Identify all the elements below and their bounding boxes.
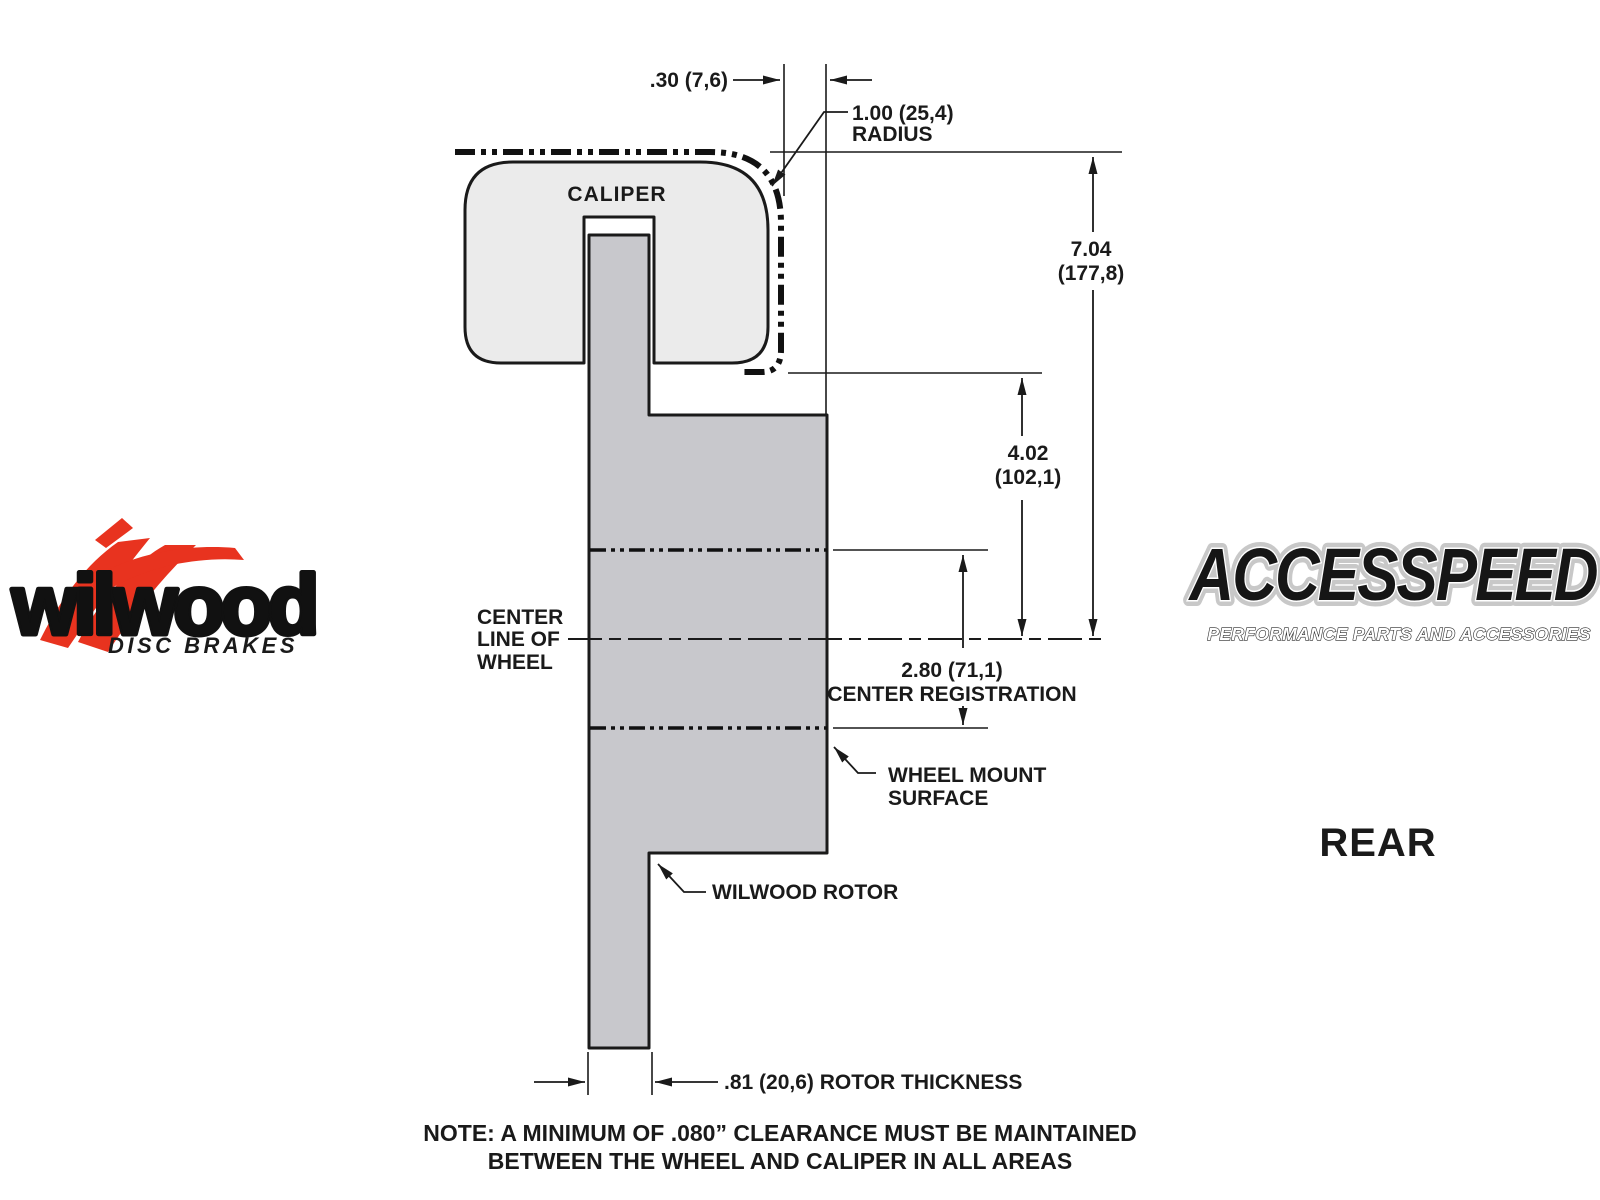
overall-height-value: 7.04 [1071,238,1112,261]
wheel-mount-label-line2: SURFACE [888,787,988,810]
wilwood-subtitle: DISC BRAKES [108,633,298,658]
note-line2: BETWEEN THE WHEEL AND CALIPER IN ALL ARE… [488,1148,1072,1174]
radius-dimension-word: RADIUS [852,123,933,146]
rotor-thickness-text: .81 (20,6) ROTOR THICKNESS [724,1071,1022,1094]
accesspeed-subtitle: PERFORMANCE PARTS AND ACCESSORIES [1207,624,1590,644]
radius-dimension-value: 1.00 (25,4) [852,102,954,125]
mount-height-mm: (102,1) [995,466,1062,489]
accesspeed-logo: ACCESSPEED ACCESSPEED PERFORMANCE PARTS … [1188,533,1598,644]
wilwood-logo: wilwood DISC BRAKES [11,518,315,658]
centerline-label-line2: LINE OF [477,628,560,651]
center-registration-value: 2.80 (71,1) [901,659,1003,682]
centerline-label-line3: WHEEL [477,651,553,674]
overall-height-mm: (177,8) [1058,262,1125,285]
centerline-label-line1: CENTER [477,606,563,629]
accesspeed-wordmark: ACCESSPEED [1188,533,1598,617]
view-label-rear: REAR [1319,821,1436,865]
clearance-dimension-text: .30 (7,6) [650,69,728,92]
technical-drawing-canvas: CALIPER .30 (7,6) 1.00 (25,4) RADIUS 7.0… [0,0,1600,1200]
mount-height-value: 4.02 [1008,442,1049,465]
brake-clearance-diagram-page: CALIPER .30 (7,6) 1.00 (25,4) RADIUS 7.0… [0,0,1600,1200]
wheel-mount-leader-arrow [834,747,876,773]
center-registration-label: CENTER REGISTRATION [827,683,1076,706]
note-line1: NOTE: A MINIMUM OF .080” CLEARANCE MUST … [423,1120,1136,1146]
rotor-leader-arrow [658,864,706,892]
caliper-label: CALIPER [567,183,666,206]
rotor-label: WILWOOD ROTOR [712,881,898,904]
wheel-mount-label-line1: WHEEL MOUNT [888,764,1046,787]
